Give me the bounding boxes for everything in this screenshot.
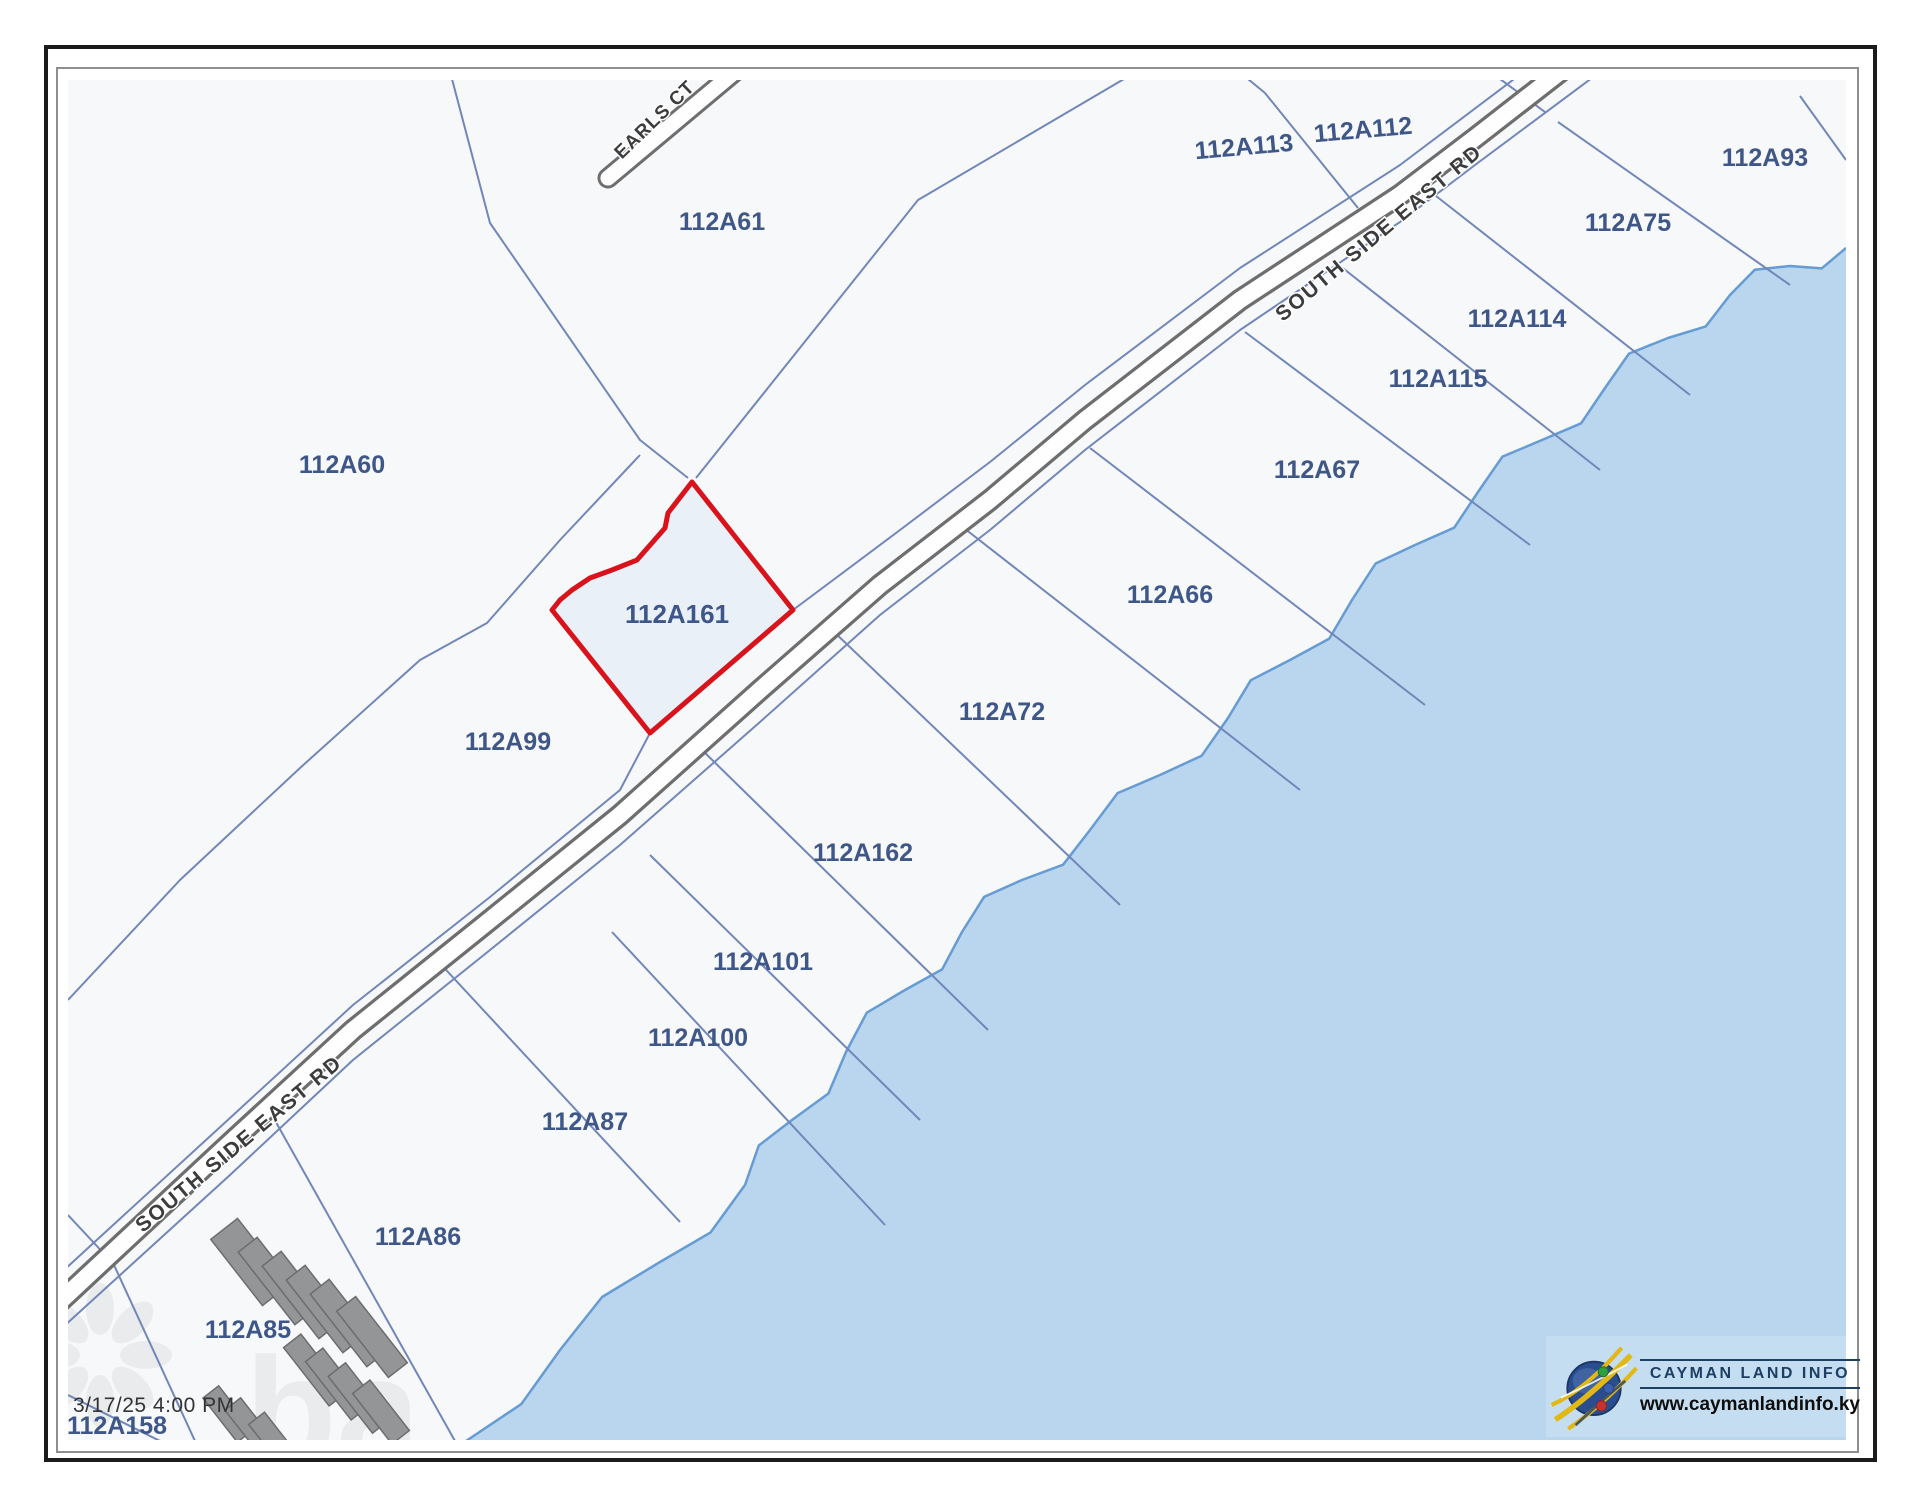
- parcel-label-112A114: 112A114: [1468, 305, 1567, 333]
- watermark-petal: [120, 1341, 172, 1369]
- parcel-label-112A100: 112A100: [648, 1024, 748, 1052]
- parcel-label-112A162: 112A162: [813, 839, 913, 867]
- selected-parcel-label: 112A161: [625, 599, 729, 629]
- parcel-label-112A66: 112A66: [1127, 581, 1213, 609]
- map-report-page: ba112A60112A61112A99112A113112A112112A93…: [0, 0, 1920, 1506]
- parcel-label-112A101: 112A101: [713, 948, 813, 976]
- cayman-land-info-logo: CAYMAN LAND INFO www.caymanlandinfo.ky: [1546, 1336, 1846, 1437]
- map-content: ba112A60112A61112A99112A113112A112112A93…: [28, 52, 1846, 1494]
- logo-title: CAYMAN LAND INFO: [1640, 1363, 1860, 1385]
- timestamp: 3/17/25 4:00 PM: [73, 1394, 235, 1418]
- parcel-label-112A85: 112A85: [205, 1316, 291, 1344]
- globe-icon: [1548, 1339, 1640, 1434]
- logo-rule-top: [1640, 1359, 1860, 1361]
- logo-url: www.caymanlandinfo.ky: [1640, 1391, 1860, 1416]
- map-canvas: ba112A60112A61112A99112A113112A112112A93…: [0, 0, 1920, 1506]
- parcel-label-112A75: 112A75: [1585, 209, 1671, 237]
- parcel-label-112A72: 112A72: [959, 698, 1045, 726]
- parcel-label-112A115: 112A115: [1389, 365, 1488, 393]
- parcel-label-112A86: 112A86: [375, 1223, 461, 1251]
- parcel-label-112A67: 112A67: [1274, 456, 1360, 484]
- parcel-label-112A87: 112A87: [542, 1108, 628, 1136]
- parcel-label-112A61: 112A61: [679, 208, 765, 236]
- parcel-label-112A93: 112A93: [1722, 144, 1808, 172]
- watermark-petal: [86, 1283, 114, 1335]
- logo-rule-bottom: [1640, 1387, 1860, 1389]
- parcel-label-112A99: 112A99: [465, 728, 551, 756]
- parcel-label-112A60: 112A60: [299, 451, 385, 479]
